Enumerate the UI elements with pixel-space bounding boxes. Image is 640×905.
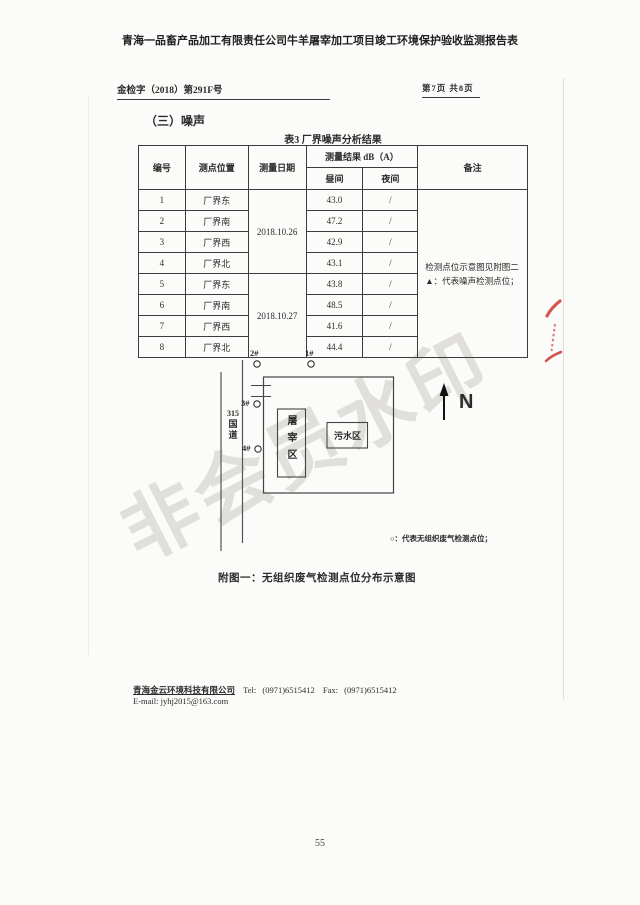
cell-no: 3 <box>139 232 186 253</box>
cell-position: 厂界北 <box>185 337 248 358</box>
page-number: 55 <box>0 838 640 849</box>
cell-position: 厂界东 <box>185 274 248 295</box>
figure-caption: 附图一：无组织废气检测点位分布示意图 <box>218 570 416 585</box>
cell-night: / <box>363 232 418 253</box>
cell-night: / <box>363 316 418 337</box>
noise-results-table: 编号 测点位置 测量日期 测量结果 dB（A） 备注 昼间 夜间 1 厂界东 2… <box>138 145 528 358</box>
cell-day: 43.1 <box>306 253 363 274</box>
footer-tel-label: Tel: <box>243 685 256 695</box>
col-header-position: 测点位置 <box>185 146 248 190</box>
header-page-indicator: 第7页 共8页 <box>422 82 480 98</box>
cell-date-group1: 2018.10.26 <box>248 190 306 274</box>
footer-tel-value: (0971)6515412 <box>262 685 314 695</box>
table-row: 1 厂界东 2018.10.26 43.0 / 检测点位示意图见附图二 ▲：代表… <box>139 190 528 211</box>
cell-night: / <box>363 295 418 316</box>
cell-remark: 检测点位示意图见附图二 ▲：代表噪声检测点位； <box>418 190 528 358</box>
table-title: 表3 厂界噪声分析结果 <box>138 131 528 146</box>
remark-line-2: ▲：代表噪声检测点位； <box>425 274 525 288</box>
footer-fax-value: (0971)6515412 <box>344 685 396 695</box>
cell-position: 厂界西 <box>185 316 248 337</box>
cell-position: 厂界南 <box>185 295 248 316</box>
col-header-night: 夜间 <box>363 168 418 190</box>
cell-night: / <box>363 190 418 211</box>
page-edge-right <box>563 78 564 700</box>
cell-date-group2: 2018.10.27 <box>248 274 306 358</box>
monitor-point-3-circle <box>254 401 260 407</box>
cell-position: 厂界东 <box>185 190 248 211</box>
cell-night: / <box>363 253 418 274</box>
diagram-legend: ○：代表无组织废气检测点位； <box>390 533 492 544</box>
col-header-no: 编号 <box>139 146 186 190</box>
footer-fax-label: Fax: <box>323 685 338 695</box>
road-label: 315 国 道 <box>224 408 242 441</box>
cell-night: / <box>363 274 418 295</box>
monitor-point-4-label: 4# <box>242 443 251 453</box>
document-title: 青海一品畜产品加工有限责任公司牛羊屠宰加工项目竣工环境保护验收监测报告表 <box>0 32 640 48</box>
monitor-point-1-label: 1# <box>305 348 314 358</box>
col-header-date: 测量日期 <box>248 146 306 190</box>
scanned-report-page: { "doc": { "title": "青海一品畜产品加工有限责任公司牛羊屠宰… <box>0 0 640 905</box>
cell-day: 48.5 <box>306 295 363 316</box>
cell-no: 6 <box>139 295 186 316</box>
cell-no: 4 <box>139 253 186 274</box>
red-seal-fragment <box>546 301 561 361</box>
header-report-number: 金检字（2018）第291F号 <box>117 82 330 100</box>
page-edge-left <box>88 95 89 655</box>
cell-day: 47.2 <box>306 211 363 232</box>
cell-no: 5 <box>139 274 186 295</box>
road-label-char1: 国 <box>224 419 242 430</box>
cell-no: 7 <box>139 316 186 337</box>
cell-day: 44.4 <box>306 337 363 358</box>
section-title-noise: （三）噪声 <box>145 112 205 129</box>
remark-line-1: 检测点位示意图见附图二 <box>425 260 525 274</box>
monitor-point-1-circle <box>308 361 314 367</box>
monitor-point-2-label: 2# <box>250 348 259 358</box>
cell-position: 厂界北 <box>185 253 248 274</box>
north-label: N <box>459 391 473 414</box>
cell-night: / <box>363 337 418 358</box>
cell-day: 43.8 <box>306 274 363 295</box>
cell-day: 42.9 <box>306 232 363 253</box>
col-header-result: 测量结果 dB（A） <box>306 146 418 168</box>
footer-email-line: E-mail: jyhj2015@163.com <box>133 696 228 706</box>
cell-no: 8 <box>139 337 186 358</box>
slaughter-area-label: 屠宰区 <box>283 415 298 477</box>
col-header-remark: 备注 <box>418 146 528 190</box>
cell-position: 厂界西 <box>185 232 248 253</box>
cell-night: / <box>363 211 418 232</box>
north-arrow-head <box>440 383 449 396</box>
monitor-point-3-label: 3# <box>241 398 250 408</box>
table-header-row: 编号 测点位置 测量日期 测量结果 dB（A） 备注 <box>139 146 528 168</box>
road-label-number: 315 <box>224 408 242 419</box>
cell-day: 43.0 <box>306 190 363 211</box>
footer-company-name: 青海金云环境科技有限公司 <box>133 685 235 695</box>
footer-contact-line: 青海金云环境科技有限公司 Tel: (0971)6515412 Fax: (09… <box>133 684 397 696</box>
cell-no: 2 <box>139 211 186 232</box>
cell-position: 厂界南 <box>185 211 248 232</box>
cell-day: 41.6 <box>306 316 363 337</box>
col-header-day: 昼间 <box>306 168 363 190</box>
monitor-point-2-circle <box>254 361 260 367</box>
monitor-point-4-circle <box>255 446 261 452</box>
road-label-char2: 道 <box>224 430 242 441</box>
sewage-area-label: 污水区 <box>327 429 368 442</box>
cell-no: 1 <box>139 190 186 211</box>
